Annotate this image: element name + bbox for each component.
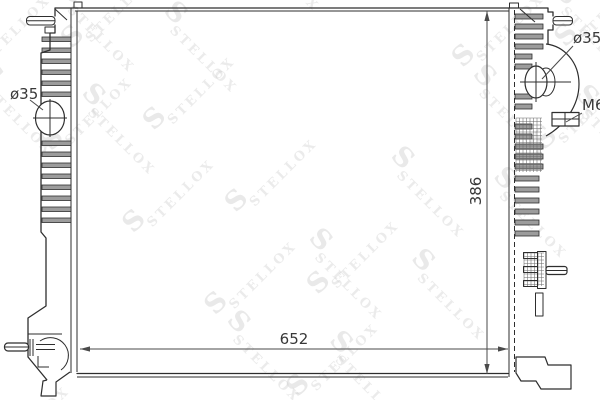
rib (515, 220, 539, 225)
rib (42, 81, 71, 86)
width-arrow-right (498, 346, 508, 351)
watermark-text: STELLOX (226, 239, 300, 313)
rib (42, 174, 71, 179)
rib (515, 144, 543, 149)
width-dim-label: 652 (280, 330, 309, 348)
stud-tab-top (524, 253, 538, 259)
right-lower-strip (536, 293, 544, 316)
rib (42, 207, 71, 212)
dimension-width: 652 (80, 330, 508, 352)
left-tank-outer-edge (28, 25, 55, 380)
left-port-label: ø35 (10, 85, 38, 103)
rib (515, 231, 539, 236)
rib (515, 187, 539, 192)
rib (42, 92, 71, 97)
watermark-text: STELLOX (0, 384, 73, 400)
rib (515, 176, 539, 181)
m6-label: M6 (582, 96, 600, 114)
left-tank (5, 8, 79, 396)
watermark-text: STELLOX (474, 0, 548, 65)
catalog-drawing-canvas: SSTELLOXSSTELLOXSSTELLOXSSTELLOXSSTELLOX… (0, 0, 600, 400)
radiator-technical-drawing: SSTELLOXSSTELLOXSSTELLOXSSTELLOXSSTELLOX… (0, 0, 600, 400)
rib (515, 164, 543, 169)
rib (515, 34, 543, 39)
right-port-label: ø35 (573, 29, 600, 47)
rib (515, 44, 543, 49)
rib (42, 37, 71, 42)
rib (515, 134, 532, 139)
rib (42, 70, 71, 75)
bracket-lobe-arc (40, 338, 68, 370)
right-foot (516, 357, 571, 389)
watermark-text: STELLOX (329, 218, 403, 292)
rib (515, 198, 539, 203)
watermark-text: STELLOX (414, 271, 488, 345)
rib (42, 196, 71, 201)
rib (42, 218, 71, 223)
rib (515, 24, 543, 29)
right-tank (509, 8, 579, 389)
height-arrow-bottom (484, 364, 489, 374)
rib (515, 54, 532, 59)
width-arrow-left (80, 346, 90, 351)
rib (42, 163, 71, 168)
rib (515, 64, 532, 69)
watermark-text: STELLOX (247, 136, 321, 210)
rib (42, 141, 71, 146)
watermark-logo: S (0, 56, 9, 92)
left-top-tab (45, 27, 55, 33)
rib (42, 152, 71, 157)
rib (515, 209, 539, 214)
core-top-right-cap (510, 3, 519, 8)
height-arrow-top (484, 11, 489, 21)
m6-tab (552, 113, 579, 127)
stud-tab-bottom (524, 281, 538, 287)
watermark-text: STELLOX (393, 168, 467, 242)
bracket-step (38, 356, 49, 367)
left-lower-bracket (5, 334, 69, 370)
watermark-text: STELLOX (83, 0, 157, 46)
height-dim-label: 386 (467, 177, 485, 206)
rib (42, 185, 71, 190)
rib (515, 104, 532, 109)
stud-tab-mid (524, 267, 538, 273)
rib (42, 59, 71, 64)
